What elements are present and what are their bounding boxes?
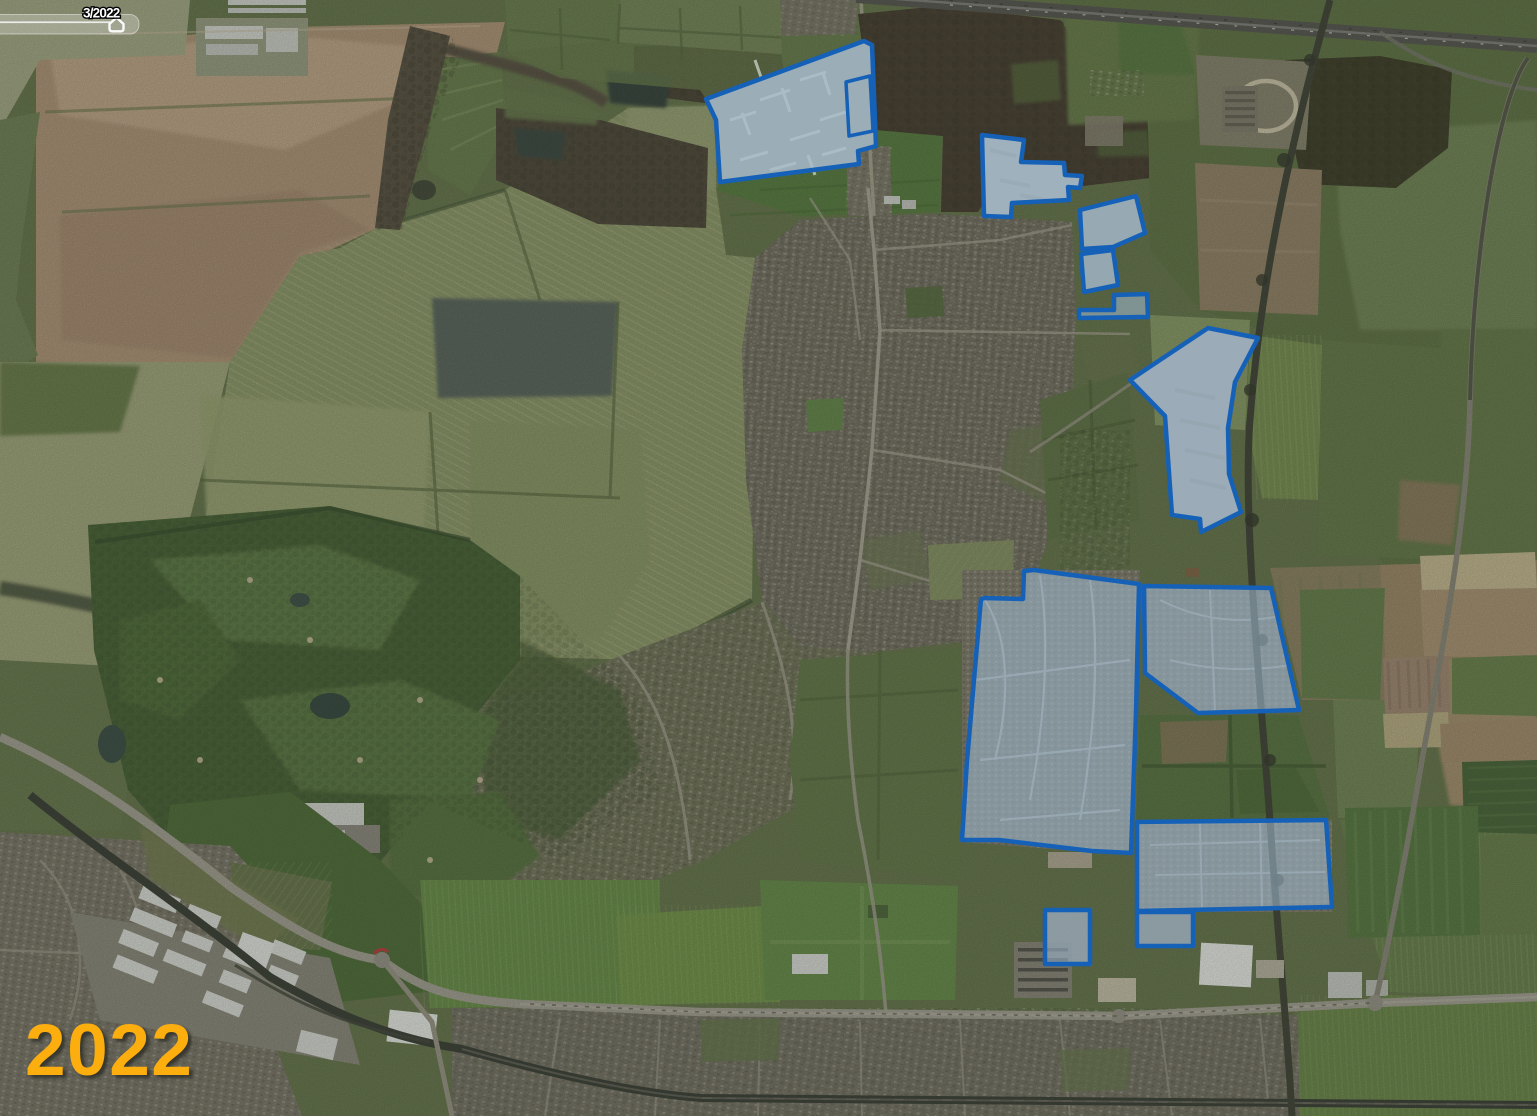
svg-text:3/2022: 3/2022: [83, 6, 120, 21]
svg-text:2022: 2022: [25, 1010, 193, 1091]
